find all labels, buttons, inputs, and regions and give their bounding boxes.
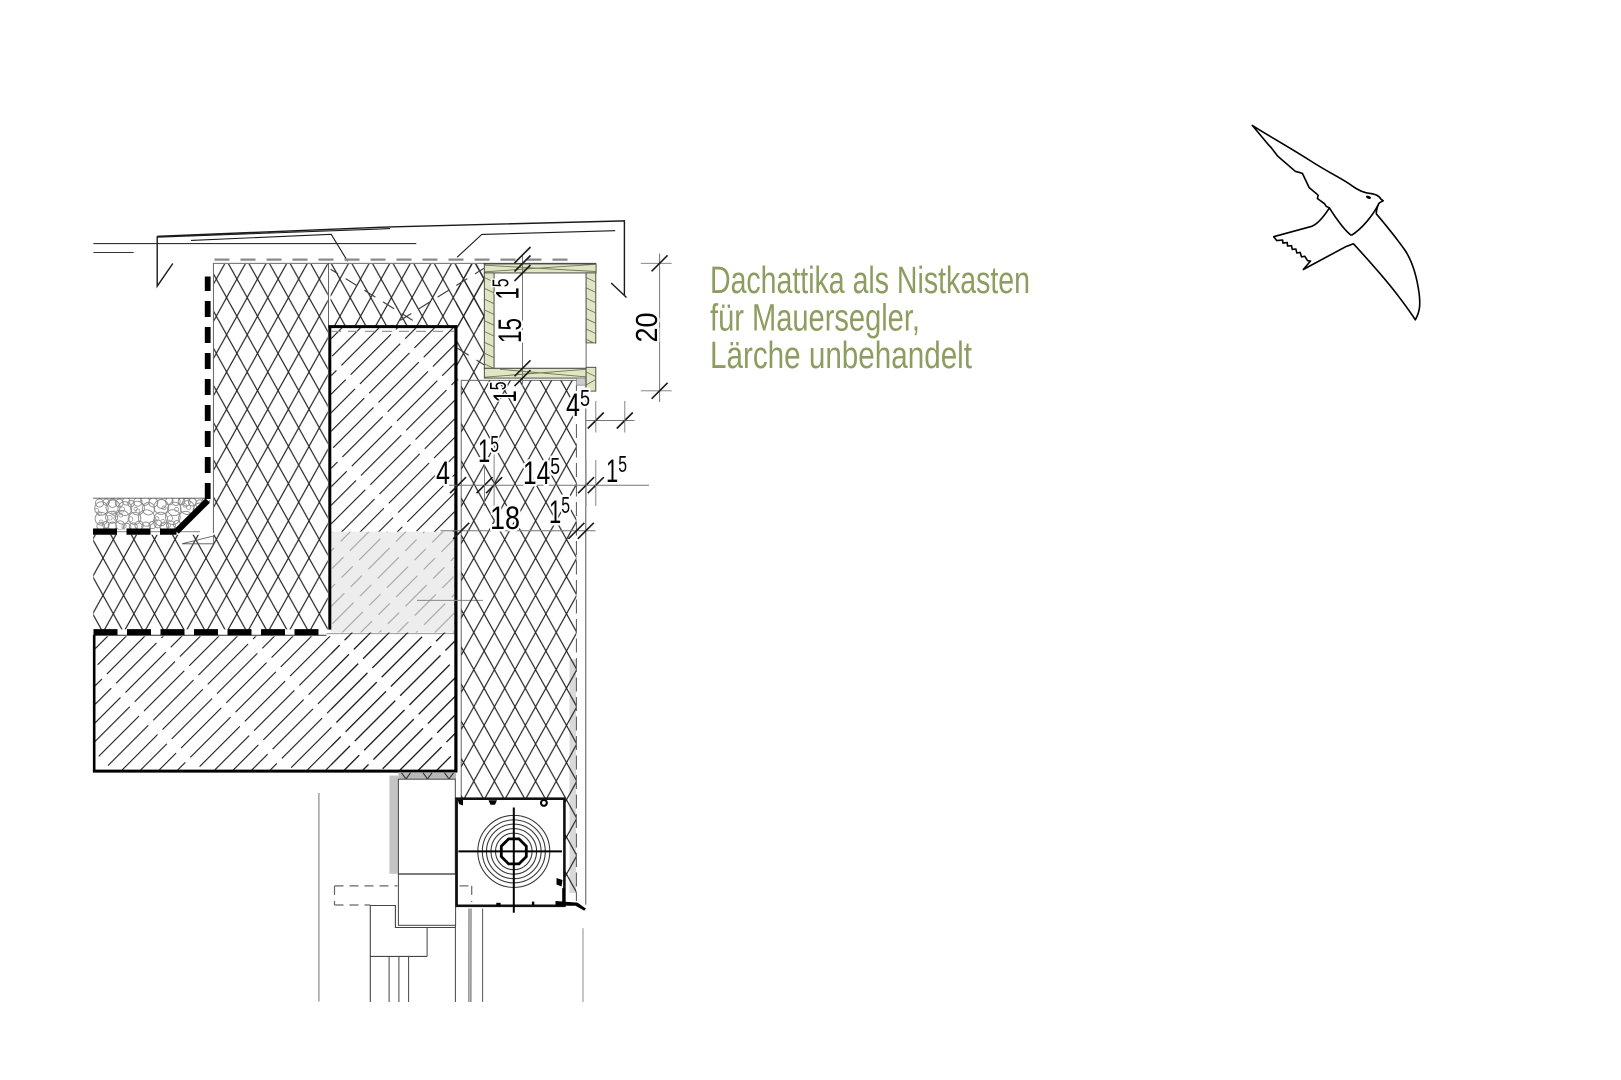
svg-text:Dachattika als Nistkasten: Dachattika als Nistkasten — [710, 260, 1030, 302]
svg-text:15: 15 — [492, 318, 528, 343]
svg-text:20: 20 — [629, 313, 664, 343]
svg-text:Lärche unbehandelt: Lärche unbehandelt — [710, 335, 972, 377]
svg-text:18: 18 — [490, 500, 520, 536]
svg-text:4: 4 — [436, 455, 450, 491]
svg-text:für Mauersegler,: für Mauersegler, — [710, 298, 920, 340]
